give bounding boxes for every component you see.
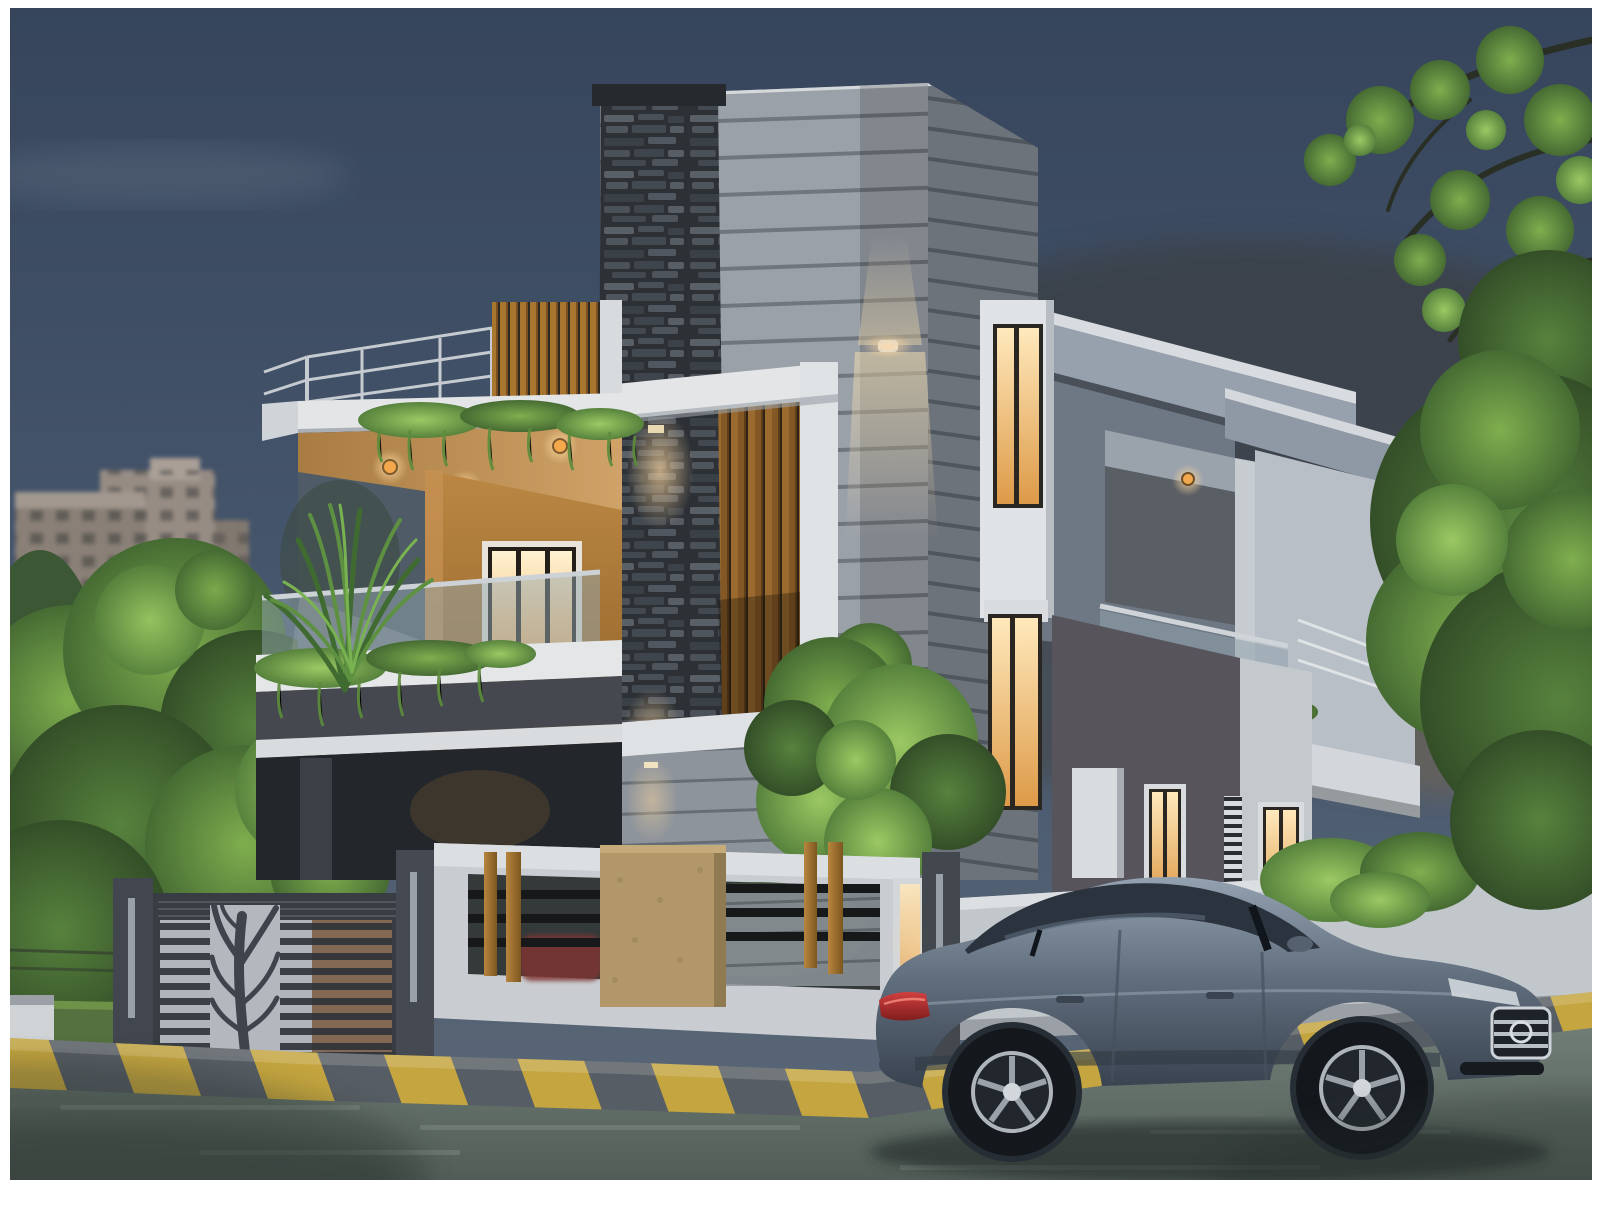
band-downlight (626, 758, 678, 842)
door-handle (1056, 996, 1084, 1003)
porch-column (300, 758, 332, 880)
front-grille (1492, 1008, 1550, 1058)
car-wheel-rear (942, 1022, 1082, 1162)
door-handle (1206, 992, 1234, 999)
wall-box (1072, 768, 1124, 878)
gate-tree-motif (210, 905, 280, 1052)
wall-left-section (434, 842, 920, 1042)
rendering-canvas (0, 0, 1600, 1209)
side-mirror (1287, 936, 1313, 952)
window-box (980, 300, 1054, 618)
louver-window (1224, 796, 1242, 884)
taillight (879, 992, 930, 1021)
architectural-rendering (10, 8, 1592, 1180)
gate-slats (280, 920, 312, 1052)
main-gate (153, 893, 403, 1068)
front-intake (1460, 1062, 1544, 1075)
stone-cap (592, 84, 726, 106)
stone-panel (600, 845, 726, 1007)
gate-slats (160, 920, 210, 1052)
